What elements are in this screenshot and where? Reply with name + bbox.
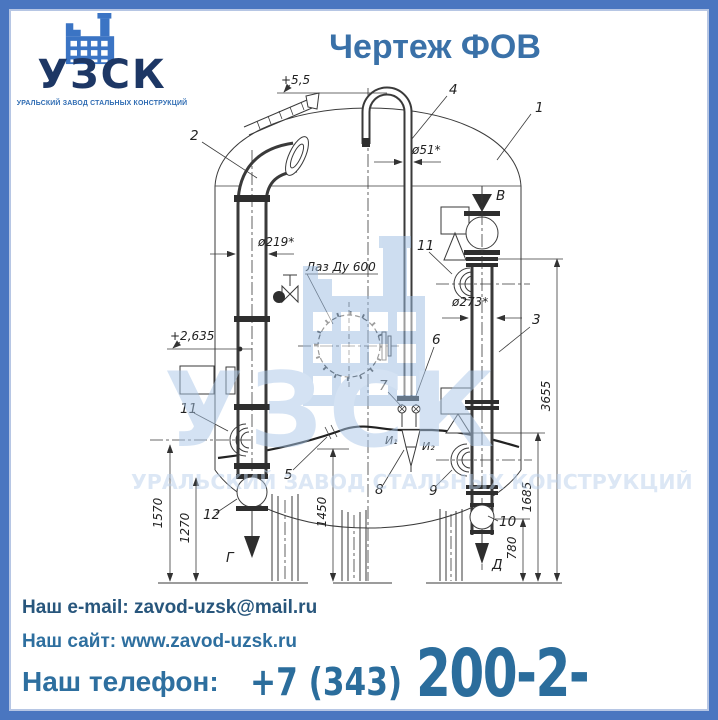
- flow-label-g: Г: [226, 550, 235, 566]
- callout-6: 6: [432, 332, 441, 348]
- dim-1450: 1450: [315, 496, 329, 527]
- dia-51: ø51*: [411, 143, 441, 157]
- callout-12: 12: [203, 507, 220, 523]
- leg-center: [342, 510, 366, 581]
- riser-end-cap: [362, 138, 370, 147]
- dia-219: ø219*: [257, 235, 294, 249]
- drain-valve-right: [470, 503, 494, 564]
- elevation-top: +5,5: [281, 73, 310, 87]
- callout-3: 3: [532, 312, 541, 328]
- email-line: Наш e-mail: zavod-uzsk@mail.ru: [22, 597, 317, 619]
- watermark-brand-name: УЗСК: [164, 351, 500, 471]
- flow-arrow-d: [475, 543, 489, 564]
- watermark-brand-tagline: УРАЛЬСКИЙ ЗАВОД СТАЛЬНЫХ КОНСТРУКЦИЙ: [131, 469, 693, 494]
- brand-name: УЗСК: [18, 52, 186, 98]
- callout-1: 1: [535, 100, 544, 116]
- dia-273: ø273*: [451, 295, 488, 309]
- site-label: Наш сайт:: [22, 631, 116, 652]
- leg-left: [272, 494, 298, 581]
- flow-label-d: Д: [491, 557, 503, 573]
- phone-number: 200-2-210: [416, 641, 646, 720]
- email-label: Наш e-mail:: [22, 597, 129, 618]
- dim-3655: 3655: [539, 381, 553, 412]
- pipe-flange: [234, 316, 270, 322]
- callout-4: 4: [449, 82, 458, 98]
- brand-tagline: УРАЛЬСКИЙ ЗАВОД СТАЛЬНЫХ КОНСТРУКЦИЙ: [16, 100, 188, 107]
- gusset-upper: [444, 233, 466, 260]
- email-value: zavod-uzsk@mail.ru: [134, 597, 317, 618]
- phone-label: Наш телефон:: [22, 666, 219, 698]
- dim-780: 780: [505, 536, 519, 559]
- dim-1270: 1270: [178, 512, 192, 543]
- dim-1570: 1570: [151, 497, 165, 528]
- callout-11-right: 11: [417, 238, 434, 254]
- site-value: www.zavod-uzsk.ru: [121, 631, 297, 652]
- elevation-middle: +2,635: [170, 329, 214, 343]
- flow-label-v: В: [496, 188, 505, 204]
- page-title: Чертеж ФОВ: [285, 28, 585, 67]
- callout-2: 2: [190, 128, 199, 144]
- leg-right: [440, 509, 462, 581]
- pipe-flange: [234, 195, 270, 202]
- left-pipe-assembly: [150, 134, 313, 558]
- page: 1570 1270 1450 780 1685 3655 ø51* ø219*: [0, 0, 718, 720]
- flow-arrow-g: [244, 536, 260, 558]
- site-line: Наш сайт: www.zavod-uzsk.ru: [22, 631, 297, 653]
- phone-area-code: +7 (343): [250, 660, 402, 704]
- callout-10: 10: [499, 514, 516, 530]
- small-gate-valve: [273, 275, 298, 303]
